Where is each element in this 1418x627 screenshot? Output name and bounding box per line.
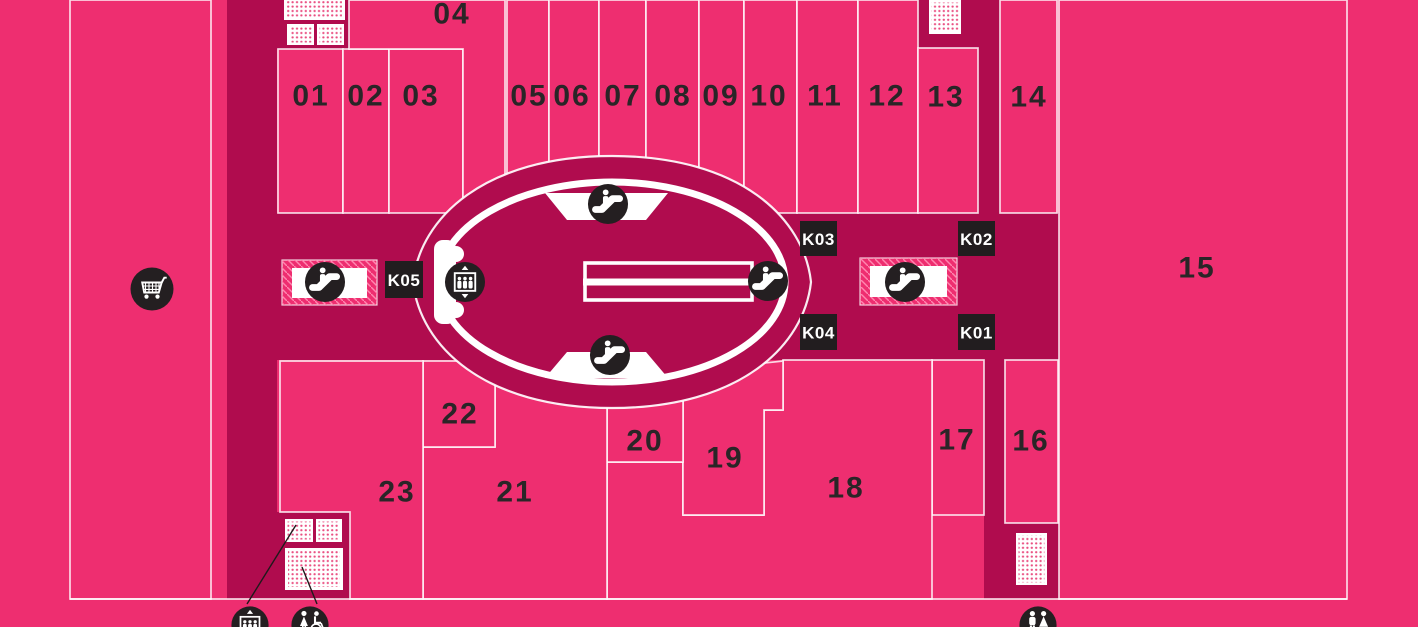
- unit-16-label: 16: [1012, 425, 1049, 458]
- escalator-west-zone-icon[interactable]: [305, 262, 345, 302]
- unit-23-label: 23: [378, 476, 415, 509]
- kiosk-k04-label: K04: [802, 324, 835, 343]
- kiosk-k05-label: K05: [388, 271, 421, 290]
- corridor-northeast-vertical: [978, 0, 1000, 213]
- unit-12-label: 12: [868, 80, 905, 113]
- unit-04-label: 04: [433, 0, 470, 31]
- kiosk-k02[interactable]: K02: [958, 221, 995, 256]
- dot-grid-southwest-small-1: [285, 519, 313, 542]
- kiosk-k01-label: K01: [960, 324, 993, 343]
- unit-21-label: 21: [496, 476, 533, 509]
- dot-grid-northeast: [929, 0, 961, 34]
- unit-01-region[interactable]: [278, 49, 343, 213]
- unit-13-region[interactable]: [918, 48, 978, 213]
- corridor-southeast-vertical: [984, 360, 1005, 599]
- unit-15-region[interactable]: [1059, 0, 1347, 599]
- escalator-north-icon[interactable]: [588, 184, 628, 224]
- dot-grid-southwest-small-2: [316, 519, 342, 542]
- unit-10-label: 10: [750, 80, 787, 113]
- unit-14-label: 14: [1010, 81, 1047, 114]
- mall-floor-map-page: K05 K03 K02 K04 K01 01 02 03 04 05 06 07…: [0, 0, 1418, 627]
- unit-09-label: 09: [702, 80, 739, 113]
- unit-01-label: 01: [292, 80, 329, 113]
- dot-grid-northwest-small-1: [287, 24, 314, 45]
- unit-19-label: 19: [706, 442, 743, 475]
- unit-13-label: 13: [927, 81, 964, 114]
- unit-03-region[interactable]: [389, 49, 463, 213]
- kiosk-k04[interactable]: K04: [800, 314, 837, 350]
- kiosk-k03-label: K03: [802, 230, 835, 249]
- unit-17-label: 17: [938, 424, 975, 457]
- dot-grid-northwest-large: [284, 0, 345, 20]
- unit-20-label: 20: [626, 425, 663, 458]
- unit-22-label: 22: [441, 398, 478, 431]
- floor-map-svg: K05 K03 K02 K04 K01 01 02 03 04 05 06 07…: [0, 0, 1418, 627]
- unit-06-label: 06: [553, 80, 590, 113]
- kiosk-k03[interactable]: K03: [800, 221, 837, 256]
- unit-08-label: 08: [654, 80, 691, 113]
- unit-15-label: 15: [1178, 252, 1215, 285]
- escalator-east-icon[interactable]: [748, 261, 788, 301]
- corridor-west-vertical: [227, 0, 277, 599]
- elevator-icon[interactable]: [445, 262, 485, 302]
- escalator-south-icon[interactable]: [590, 335, 630, 375]
- unit-02-region[interactable]: [343, 49, 389, 213]
- unit-02-label: 02: [347, 80, 384, 113]
- unit-03-label: 03: [402, 80, 439, 113]
- shopping-cart-icon[interactable]: [131, 268, 174, 311]
- dot-grid-northwest-small-2: [317, 24, 344, 45]
- kiosk-k02-label: K02: [960, 230, 993, 249]
- dot-grid-southwest-large: [285, 548, 343, 590]
- unit-07-label: 07: [604, 80, 641, 113]
- unit-11-label: 11: [807, 80, 843, 113]
- dot-grid-southeast: [1016, 533, 1047, 585]
- bridge-walkway: [583, 263, 754, 300]
- kiosk-k05[interactable]: K05: [385, 261, 423, 298]
- escalator-east-zone-icon[interactable]: [885, 262, 925, 302]
- unit-05-label: 05: [510, 80, 547, 113]
- kiosk-k01[interactable]: K01: [958, 314, 995, 350]
- unit-18-label: 18: [827, 472, 864, 505]
